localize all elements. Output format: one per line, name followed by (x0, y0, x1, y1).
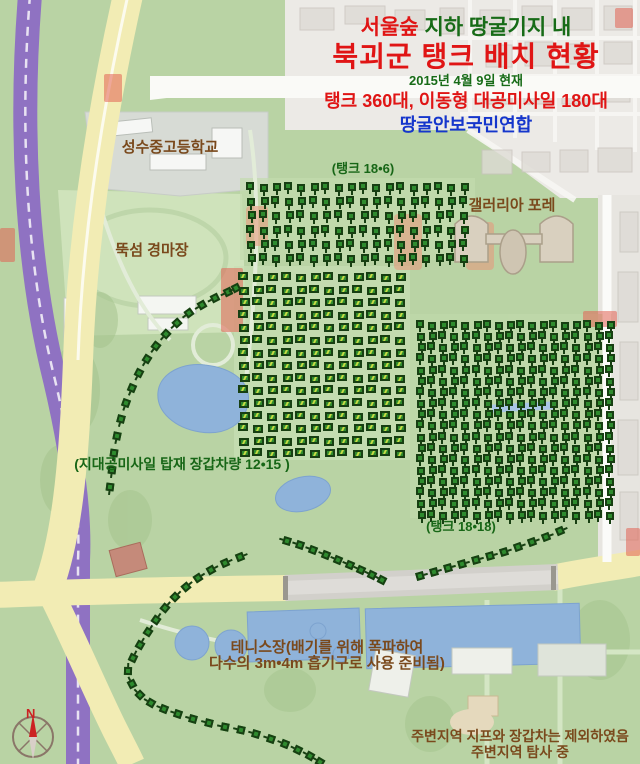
apc-icon (252, 297, 262, 305)
tank-icon (439, 478, 447, 486)
tank-icon (528, 389, 536, 397)
tank-icon (373, 240, 381, 248)
tank-icon (417, 467, 425, 475)
tank-icon (583, 487, 591, 495)
tank-icon (528, 456, 536, 464)
apc-icon (311, 424, 321, 432)
tank-icon (371, 253, 379, 261)
tank-icon (562, 433, 570, 441)
tank-icon (507, 354, 515, 362)
tank-icon (450, 500, 458, 508)
apc-icon (380, 411, 390, 419)
tank-icon (360, 241, 368, 249)
tank-icon (438, 498, 446, 506)
apc-icon (239, 324, 249, 332)
tank-icon (309, 196, 317, 204)
tank-icon (596, 366, 604, 374)
apc-icon (311, 386, 321, 394)
tank-icon (462, 466, 470, 474)
tank-icon (594, 443, 602, 451)
apc-icon (380, 335, 390, 343)
tank-icon (429, 366, 437, 374)
tank-icon (605, 498, 613, 506)
tank-icon (584, 333, 592, 341)
tank-icon (596, 499, 604, 507)
tank-icon (451, 511, 459, 519)
tank-icon (506, 378, 514, 386)
apc-icon (354, 273, 364, 281)
tank-icon (505, 465, 513, 473)
tank-icon (429, 399, 437, 407)
apc-icon (382, 286, 392, 294)
tank-icon (416, 420, 424, 428)
tank-icon (573, 455, 581, 463)
apc-icon (297, 437, 307, 445)
apc-icon (325, 449, 335, 457)
tank-icon (483, 320, 491, 328)
tank-icon (517, 333, 525, 341)
tank-icon (450, 367, 458, 375)
apc-icon (295, 335, 305, 343)
apc-icon (395, 299, 405, 307)
tank-icon (272, 255, 280, 263)
tank-icon (311, 226, 319, 234)
apc-icon (396, 273, 406, 281)
tank-icon (561, 355, 569, 363)
tank-icon (551, 444, 559, 452)
apc-icon (323, 348, 333, 356)
tank-icon (398, 211, 406, 219)
tank-icon (605, 432, 613, 440)
tank-icon (595, 422, 603, 430)
tank-icon (484, 400, 492, 408)
apc-icon (283, 412, 293, 420)
tank-icon (496, 332, 504, 340)
tank-icon (246, 225, 254, 233)
tank-icon (560, 510, 568, 518)
apc-icon (281, 348, 291, 356)
tank-icon (246, 182, 254, 190)
apc-icon (353, 299, 363, 307)
apc-icon (297, 286, 307, 294)
tank-icon (321, 182, 329, 190)
apc-icon (240, 374, 250, 382)
tank-icon (450, 467, 458, 475)
apc-icon (382, 437, 392, 445)
tank-icon (495, 322, 503, 330)
tank-icon (461, 456, 469, 464)
apc-icon (353, 413, 363, 421)
tank-icon (495, 456, 503, 464)
apc-icon (396, 386, 406, 394)
tank-icon (596, 433, 604, 441)
tank-icon (220, 722, 229, 731)
tank-icon (259, 253, 267, 261)
tank-icon (496, 499, 504, 507)
apc-icon (395, 337, 405, 345)
label-school: 성수중고등학교 (80, 139, 260, 156)
apc-icon (352, 360, 362, 368)
apc-icon (310, 375, 320, 383)
tank-icon (416, 387, 424, 395)
tank-icon (550, 467, 558, 475)
tank-icon (285, 241, 293, 249)
tank-icon (572, 344, 580, 352)
tank-icon (334, 210, 342, 218)
tank-icon (296, 210, 304, 218)
apc-icon (325, 412, 335, 420)
tank-icon (551, 377, 559, 385)
tank-icon (449, 454, 457, 462)
tank-icon (373, 197, 381, 205)
tank-icon (298, 240, 306, 248)
apc-icon (240, 336, 250, 344)
tank-icon (507, 421, 515, 429)
tank-icon (527, 510, 535, 518)
tank-icon (572, 512, 580, 520)
apc-icon (324, 287, 334, 295)
tank-icon (605, 365, 613, 373)
apc-icon (394, 398, 404, 406)
tank-icon (112, 431, 121, 440)
tank-icon (416, 320, 424, 328)
tank-icon (583, 420, 591, 428)
tank-icon (495, 489, 503, 497)
apc-icon (238, 348, 248, 356)
tank-icon (595, 355, 603, 363)
apc-icon (309, 322, 319, 330)
title-line1-rest: 지하 땅굴기지 내 (419, 16, 572, 39)
tank-icon (273, 226, 281, 234)
tank-icon (538, 365, 546, 373)
apc-icon (323, 310, 333, 318)
tank-icon (384, 239, 392, 247)
tank-icon (538, 432, 546, 440)
apc-icon (367, 324, 377, 332)
tank-icon (284, 225, 292, 233)
tank-icon (505, 498, 513, 506)
apc-icon (297, 399, 307, 407)
apc-icon (266, 360, 276, 368)
tank-icon (518, 444, 526, 452)
tank-icon (261, 240, 269, 248)
tank-icon (372, 227, 380, 235)
tank-icon (550, 434, 558, 442)
tank-icon (472, 432, 480, 440)
tank-icon (260, 184, 268, 192)
apc-icon (380, 448, 390, 456)
tank-icon (607, 455, 615, 463)
tank-icon (428, 456, 436, 464)
tank-icon (460, 342, 468, 350)
tank-icon (436, 254, 444, 262)
tank-icon (516, 454, 524, 462)
apc-icon (268, 349, 278, 357)
tank-icon (496, 466, 504, 474)
apc-icon (282, 438, 292, 446)
tank-icon (484, 367, 492, 375)
tank-icon (606, 344, 614, 352)
apc-icon (267, 299, 277, 307)
apc-icon (282, 287, 292, 295)
tank-icon (384, 196, 392, 204)
tank-icon (584, 434, 592, 442)
tank-icon (346, 196, 354, 204)
apc-icon (368, 412, 378, 420)
tank-icon (605, 331, 613, 339)
tank-icon (550, 367, 558, 375)
tank-icon (439, 344, 447, 352)
tank-icon (410, 184, 418, 192)
tank-icon (472, 398, 480, 406)
tank-icon (527, 342, 535, 350)
tank-icon (528, 355, 536, 363)
apc-icon (281, 310, 291, 318)
tank-icon (594, 409, 602, 417)
tank-icon (335, 227, 343, 235)
apc-icon (266, 285, 276, 293)
tank-icon (434, 182, 442, 190)
apc-icon (323, 423, 333, 431)
tank-icon (248, 211, 256, 219)
tank-icon (496, 366, 504, 374)
tank-icon (440, 388, 448, 396)
apc-icon (352, 398, 362, 406)
apc-icon (394, 436, 404, 444)
apc-icon (338, 387, 348, 395)
tank-icon (451, 410, 459, 418)
tank-icon (417, 500, 425, 508)
tank-icon (529, 433, 537, 441)
apc-icon (281, 423, 291, 431)
tank-icon (561, 422, 569, 430)
tank-icon (606, 378, 614, 386)
tank-icon (571, 398, 579, 406)
tank-icon (529, 399, 537, 407)
tank-icon (439, 411, 447, 419)
apc-icon (311, 311, 321, 319)
tank-icon (550, 400, 558, 408)
apc-icon (266, 436, 276, 444)
tank-icon (562, 466, 570, 474)
apc-icon (296, 274, 306, 282)
tank-icon (396, 182, 404, 190)
apc-icon (367, 438, 377, 446)
tank-icon (483, 420, 491, 428)
tank-icon (494, 443, 502, 451)
apc-icon (253, 350, 263, 358)
tank-icon (594, 342, 602, 350)
tank-icon (560, 376, 568, 384)
tank-icon (571, 331, 579, 339)
red-marker (626, 528, 640, 556)
apc-icon (281, 385, 291, 393)
tank-icon (484, 500, 492, 508)
tank-icon (485, 343, 493, 351)
apc-icon (239, 362, 249, 370)
tank-icon (540, 488, 548, 496)
tank-icon (507, 455, 515, 463)
tank-icon (607, 354, 615, 362)
apc-icon (338, 350, 348, 358)
apc-icon (353, 337, 363, 345)
tank-icon (271, 196, 279, 204)
apc-icon (252, 373, 262, 381)
tank-icon (494, 376, 502, 384)
title-block: 서울숲 지하 땅굴기지 내 북괴군 탱크 배치 현황 2015년 4월 9일 현… (285, 16, 640, 135)
apc-icon (367, 287, 377, 295)
tank-icon (461, 183, 469, 191)
apc-icon (238, 310, 248, 318)
tank-icon (506, 411, 514, 419)
tank-icon (297, 184, 305, 192)
tank-icon (538, 398, 546, 406)
tank-icon (517, 434, 525, 442)
tank-icon (562, 499, 570, 507)
apc-icon (368, 449, 378, 457)
apc-icon (380, 297, 390, 305)
apc-icon (310, 299, 320, 307)
apc-icon (325, 336, 335, 344)
tank-icon (495, 355, 503, 363)
tank-icon (551, 477, 559, 485)
tank-icon (285, 198, 293, 206)
label-racetrack: 뚝섬 경마장 (72, 242, 232, 259)
tank-icon (286, 211, 294, 219)
tank-icon (529, 332, 537, 340)
tank-icon (572, 478, 580, 486)
tank-icon (538, 465, 546, 473)
apc-icon (366, 272, 376, 280)
apc-icon (337, 335, 347, 343)
apc-icon (268, 311, 278, 319)
tank-icon (428, 489, 436, 497)
apc-icon (323, 272, 333, 280)
apc-icon (368, 374, 378, 382)
tank-icon (418, 511, 426, 519)
tank-icon (483, 387, 491, 395)
tank-icon (518, 511, 526, 519)
tank-icon (418, 410, 426, 418)
apc-icon (238, 272, 248, 280)
apc-icon (366, 423, 376, 431)
tank-icon (596, 399, 604, 407)
title-organization: 땅굴안보국민연합 (285, 115, 640, 135)
apc-icon (337, 373, 347, 381)
apc-icon (267, 337, 277, 345)
label-tank-grid-top: (탱크 18•6) (283, 162, 443, 177)
tank-icon (529, 366, 537, 374)
tank-icon (506, 445, 514, 453)
tank-icon (385, 255, 393, 263)
tank-icon (474, 488, 482, 496)
tank-icon (485, 377, 493, 385)
tank-icon (460, 376, 468, 384)
apc-icon (352, 285, 362, 293)
tank-icon (449, 353, 457, 361)
tank-icon (427, 342, 435, 350)
tank-icon (560, 443, 568, 451)
tank-icon (427, 409, 435, 417)
apc-icon (295, 411, 305, 419)
tank-icon (527, 409, 535, 417)
tank-icon (560, 342, 568, 350)
apc-icon (296, 425, 306, 433)
tank-icon (360, 198, 368, 206)
tank-icon (573, 388, 581, 396)
tank-icon (473, 445, 481, 453)
apc-icon (339, 437, 349, 445)
tank-icon (386, 183, 394, 191)
tank-icon (540, 354, 548, 362)
tank-icon (484, 333, 492, 341)
tank-icon (549, 320, 557, 328)
tank-icon (460, 255, 468, 263)
label-note-line1: 주변지역 지프와 장갑차는 제외하였음 (400, 728, 640, 744)
tank-icon (518, 377, 526, 385)
tank-icon (427, 376, 435, 384)
tank-icon (473, 378, 481, 386)
tank-icon (518, 477, 526, 485)
tank-icon (271, 239, 279, 247)
apc-icon (353, 450, 363, 458)
tank-icon (561, 389, 569, 397)
tank-icon (260, 227, 268, 235)
tank-icon (429, 433, 437, 441)
tank-icon (494, 409, 502, 417)
tank-icon (594, 476, 602, 484)
apc-icon (268, 273, 278, 281)
tank-icon (585, 477, 593, 485)
tank-icon (449, 487, 457, 495)
tank-icon (538, 498, 546, 506)
apc-icon (238, 423, 248, 431)
tank-icon (571, 365, 579, 373)
tank-icon (474, 421, 482, 429)
tank-icon (461, 226, 469, 234)
apc-icon (366, 348, 376, 356)
tank-icon (428, 355, 436, 363)
tank-icon (485, 410, 493, 418)
tank-icon (494, 476, 502, 484)
apc-icon (297, 323, 307, 331)
tank-icon (397, 241, 405, 249)
tank-icon (418, 377, 426, 385)
apc-icon (368, 336, 378, 344)
tank-icon (323, 254, 331, 262)
tank-icon (451, 477, 459, 485)
tank-icon (539, 344, 547, 352)
tank-icon (551, 343, 559, 351)
label-galleria: 갤러리아 포레 (432, 197, 592, 214)
map-canvas: 서울숲 지하 땅굴기지 내 북괴군 탱크 배치 현황 2015년 4월 9일 현… (0, 0, 640, 764)
tank-icon (572, 378, 580, 386)
tank-icon (461, 422, 469, 430)
tank-icon (571, 498, 579, 506)
tank-icon (527, 476, 535, 484)
tank-icon (550, 333, 558, 341)
tank-icon (427, 443, 435, 451)
tank-icon (606, 512, 614, 520)
apc-icon (324, 438, 334, 446)
tank-icon (451, 444, 459, 452)
apc-icon (339, 361, 349, 369)
tank-icon (417, 333, 425, 341)
title-date: 2015년 4월 9일 현재 (285, 74, 640, 89)
tank-icon (396, 225, 404, 233)
tank-icon (409, 253, 417, 261)
apc-icon (382, 361, 392, 369)
